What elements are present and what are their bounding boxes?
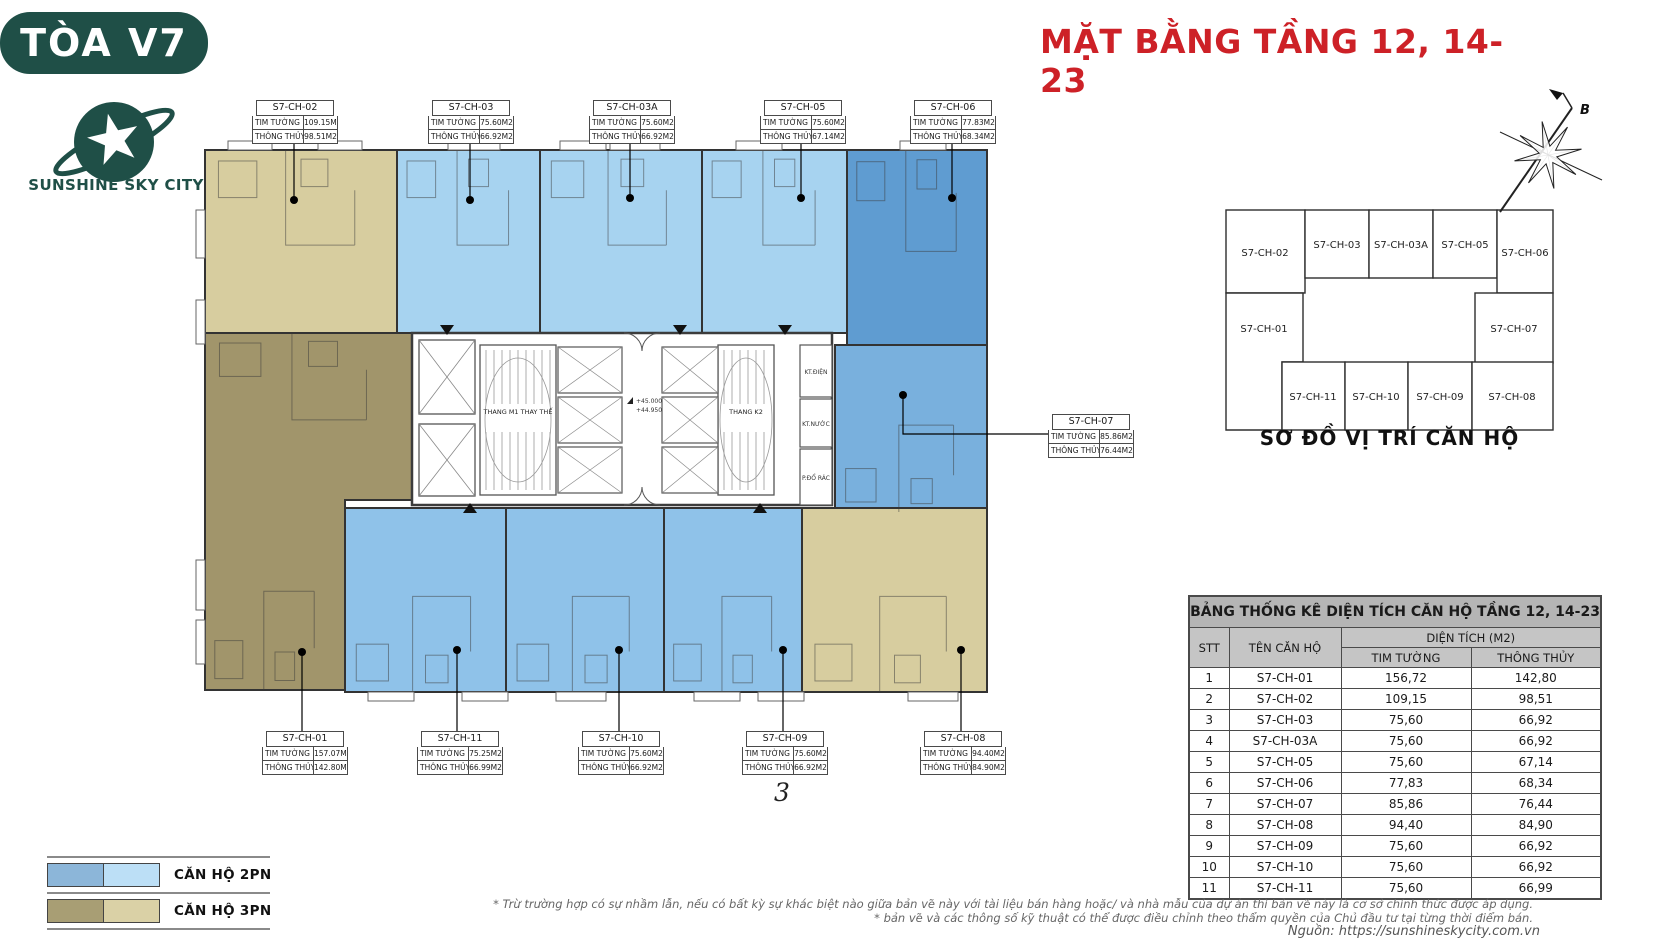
table-cell: S7-CH-02 bbox=[1229, 689, 1341, 710]
leader-dot-icon bbox=[615, 646, 623, 654]
legend-item-3pn: CĂN HỘ 3PN bbox=[47, 894, 307, 928]
table-row: 4S7-CH-03A75,6066,92 bbox=[1189, 731, 1601, 752]
table-cell: 2 bbox=[1189, 689, 1229, 710]
unit-label-s7-ch-09: S7-CH-09TIM TƯỜNG75.60M2THÔNG THỦY66.92M… bbox=[742, 731, 828, 775]
table-cell: 66,92 bbox=[1471, 731, 1601, 752]
unit-label-key: THÔNG THỦY bbox=[921, 761, 972, 774]
table-cell: S7-CH-03 bbox=[1229, 710, 1341, 731]
staircase-2 bbox=[718, 345, 774, 495]
table-row: 3S7-CH-0375,6066,92 bbox=[1189, 710, 1601, 731]
table-cell: 156,72 bbox=[1341, 668, 1471, 689]
table-row: 7S7-CH-0785,8676,44 bbox=[1189, 794, 1601, 815]
table-cell: S7-CH-08 bbox=[1229, 815, 1341, 836]
core-area: THANG M1 THAY THẾ THANG K2 +45.000 +44.9… bbox=[412, 325, 832, 513]
table-cell: 8 bbox=[1189, 815, 1229, 836]
balcony bbox=[758, 692, 804, 701]
table-cell: 66,92 bbox=[1471, 710, 1601, 731]
table-row: 9S7-CH-0975,6066,92 bbox=[1189, 836, 1601, 857]
floor-plan-page: THANG M1 THAY THẾ THANG K2 +45.000 +44.9… bbox=[0, 0, 1653, 945]
table-cell: S7-CH-07 bbox=[1229, 794, 1341, 815]
trash-room-label: P.ĐỔ RÁC bbox=[802, 474, 830, 482]
table-cell: 77,83 bbox=[1341, 773, 1471, 794]
table-cell: S7-CH-06 bbox=[1229, 773, 1341, 794]
swatch-color bbox=[104, 864, 159, 886]
unit-label-key: THÔNG THỦY bbox=[911, 130, 962, 143]
unit-label-name: S7-CH-09 bbox=[746, 731, 824, 747]
kt-nuoc-label: KT.NƯỚC bbox=[802, 421, 830, 428]
legend-label-2pn: CĂN HỘ 2PN bbox=[174, 867, 271, 883]
unit-label-value: 77.83M2 bbox=[962, 116, 995, 129]
unit-label-key: TIM TƯỜNG bbox=[911, 116, 962, 129]
unit-label-value: 85.86M2 bbox=[1100, 430, 1133, 443]
leader-dot-icon bbox=[298, 648, 306, 656]
unit-label-value: 75.60M2 bbox=[480, 116, 513, 129]
unit-label-row: THÔNG THỦY66.92M2 bbox=[742, 761, 828, 775]
table-cell: 142,80 bbox=[1471, 668, 1601, 689]
unit-label-key: TIM TƯỜNG bbox=[743, 747, 794, 760]
table-cell: S7-CH-11 bbox=[1229, 878, 1341, 900]
col-header-thong-thuy: THÔNG THỦY bbox=[1471, 648, 1601, 668]
key-plan-cell-label: S7-CH-11 bbox=[1289, 392, 1336, 403]
unit-label-row: THÔNG THỦY68.34M2 bbox=[910, 130, 996, 144]
unit-label-name: S7-CH-07 bbox=[1052, 414, 1130, 430]
footnote-line-2: * bản vẽ và các thông số kỹ thuật có thể… bbox=[400, 911, 1533, 925]
table-cell: 10 bbox=[1189, 857, 1229, 878]
swatch-color bbox=[48, 900, 104, 922]
balcony bbox=[368, 692, 414, 701]
unit-label-key: TIM TƯỜNG bbox=[429, 116, 480, 129]
unit-label-value: 157.07M2 bbox=[314, 747, 347, 760]
unit-label-name: S7-CH-02 bbox=[256, 100, 334, 116]
leader-dot-icon bbox=[779, 646, 787, 654]
table-cell: 75,60 bbox=[1341, 731, 1471, 752]
balcony bbox=[556, 692, 606, 701]
unit-label-row: TIM TƯỜNG94.40M2 bbox=[920, 747, 1006, 761]
unit-label-value: 75.60M2 bbox=[812, 116, 845, 129]
key-plan-cell-label: S7-CH-03 bbox=[1313, 240, 1360, 251]
unit-label-name: S7-CH-08 bbox=[924, 731, 1002, 747]
unit-label-key: TIM TƯỜNG bbox=[761, 116, 812, 129]
unit-label-row: TIM TƯỜNG77.83M2 bbox=[910, 116, 996, 130]
table-cell: 6 bbox=[1189, 773, 1229, 794]
unit-label-s7-ch-03a: S7-CH-03ATIM TƯỜNG75.60M2THÔNG THỦY66.92… bbox=[589, 100, 675, 144]
unit-label-key: THÔNG THỦY bbox=[253, 130, 304, 143]
legend-divider bbox=[47, 928, 270, 930]
key-plan-cell-label: S7-CH-09 bbox=[1416, 392, 1463, 403]
unit-label-s7-ch-10: S7-CH-10TIM TƯỜNG75.60M2THÔNG THỦY66.92M… bbox=[578, 731, 664, 775]
unit-label-s7-ch-06: S7-CH-06TIM TƯỜNG77.83M2THÔNG THỦY68.34M… bbox=[910, 100, 996, 144]
key-plan-cell-label: S7-CH-01 bbox=[1240, 324, 1287, 335]
compass-star-icon bbox=[1515, 122, 1582, 189]
unit-label-name: S7-CH-03 bbox=[432, 100, 510, 116]
unit-label-row: THÔNG THỦY66.92M2 bbox=[428, 130, 514, 144]
unit-label-key: TIM TƯỜNG bbox=[1049, 430, 1100, 443]
balcony bbox=[462, 692, 508, 701]
table-cell: S7-CH-10 bbox=[1229, 857, 1341, 878]
unit-label-key: THÔNG THỦY bbox=[263, 761, 314, 774]
building-tag-label: TÒA V7 bbox=[20, 21, 188, 65]
unit-label-key: THÔNG THỦY bbox=[418, 761, 469, 774]
balcony bbox=[196, 300, 205, 344]
unit-label-row: TIM TƯỜNG75.60M2 bbox=[760, 116, 846, 130]
leader-dot-icon bbox=[453, 646, 461, 654]
north-flag-icon bbox=[1549, 89, 1563, 100]
table-cell: 75,60 bbox=[1341, 878, 1471, 900]
table-cell: 66,92 bbox=[1471, 836, 1601, 857]
page-mark: 3 bbox=[774, 778, 790, 807]
unit-label-row: TIM TƯỜNG157.07M2 bbox=[262, 747, 348, 761]
unit-label-row: THÔNG THỦY142.80M2 bbox=[262, 761, 348, 775]
unit-label-name: S7-CH-03A bbox=[593, 100, 671, 116]
table-cell: 75,60 bbox=[1341, 752, 1471, 773]
key-plan-cell-label: S7-CH-05 bbox=[1441, 240, 1488, 251]
unit-label-row: TIM TƯỜNG75.60M2 bbox=[578, 747, 664, 761]
brand-logo bbox=[50, 101, 178, 183]
footnote-line-1: * Trừ trường hợp có sự nhầm lẫn, nếu có … bbox=[400, 897, 1533, 911]
unit-label-value: 68.34M2 bbox=[962, 130, 995, 143]
table-cell: S7-CH-03A bbox=[1229, 731, 1341, 752]
table-cell: 3 bbox=[1189, 710, 1229, 731]
stair2-label: THANG K2 bbox=[728, 408, 763, 416]
table-cell: 76,44 bbox=[1471, 794, 1601, 815]
unit-label-key: THÔNG THỦY bbox=[579, 761, 630, 774]
unit-label-value: 75.60M2 bbox=[794, 747, 827, 760]
table-cell: 94,40 bbox=[1341, 815, 1471, 836]
kt-dien-label: KT.ĐIỆN bbox=[804, 368, 827, 376]
leader-dot-icon bbox=[957, 646, 965, 654]
key-plan-diagram: S7-CH-02S7-CH-03S7-CH-03AS7-CH-05S7-CH-0… bbox=[1226, 210, 1553, 430]
key-plan-cell-label: S7-CH-08 bbox=[1488, 392, 1535, 403]
unit-label-s7-ch-05: S7-CH-05TIM TƯỜNG75.60M2THÔNG THỦY67.14M… bbox=[760, 100, 846, 144]
unit-label-key: THÔNG THỦY bbox=[743, 761, 794, 774]
legend-swatch-2pn bbox=[47, 863, 160, 887]
unit-label-row: THÔNG THỦY84.90M2 bbox=[920, 761, 1006, 775]
balcony bbox=[196, 620, 205, 664]
compass-icon: B bbox=[1500, 89, 1602, 212]
area-table-title: BẢNG THỐNG KÊ DIỆN TÍCH CĂN HỘ TẦNG 12, … bbox=[1189, 596, 1601, 628]
balcony bbox=[196, 560, 205, 610]
legend-swatch-3pn bbox=[47, 899, 160, 923]
leader-dot-icon bbox=[797, 194, 805, 202]
table-cell: 67,14 bbox=[1471, 752, 1601, 773]
unit-label-name: S7-CH-10 bbox=[582, 731, 660, 747]
unit-label-value: 67.14M2 bbox=[812, 130, 845, 143]
table-cell: 66,92 bbox=[1471, 857, 1601, 878]
unit-label-key: THÔNG THỦY bbox=[429, 130, 480, 143]
leader-dot-icon bbox=[899, 391, 907, 399]
unit-label-value: 98.51M2 bbox=[304, 130, 337, 143]
unit-label-key: TIM TƯỜNG bbox=[579, 747, 630, 760]
col-header-stt: STT bbox=[1189, 628, 1229, 668]
table-row: 8S7-CH-0894,4084,90 bbox=[1189, 815, 1601, 836]
unit-label-name: S7-CH-06 bbox=[914, 100, 992, 116]
table-cell: 1 bbox=[1189, 668, 1229, 689]
key-plan-title: SƠ ĐỒ VỊ TRÍ CĂN HỘ bbox=[1226, 426, 1553, 450]
unit-label-name: S7-CH-01 bbox=[266, 731, 344, 747]
brand-name: SUNSHINE SKY CITY bbox=[28, 176, 204, 194]
unit-label-row: THÔNG THỦY66.92M2 bbox=[578, 761, 664, 775]
unit-label-value: 76.44M2 bbox=[1100, 444, 1133, 457]
unit-label-key: THÔNG THỦY bbox=[590, 130, 641, 143]
balcony bbox=[196, 210, 205, 258]
key-plan-cell-label: S7-CH-03A bbox=[1374, 240, 1428, 251]
unit-label-s7-ch-11: S7-CH-11TIM TƯỜNG75.25M2THÔNG THỦY66.99M… bbox=[417, 731, 503, 775]
table-cell: 75,60 bbox=[1341, 857, 1471, 878]
unit-label-row: THÔNG THỦY66.99M2 bbox=[417, 761, 503, 775]
key-plan-cell-label: S7-CH-07 bbox=[1490, 324, 1537, 335]
swatch-color bbox=[104, 900, 159, 922]
unit-label-row: THÔNG THỦY98.51M2 bbox=[252, 130, 338, 144]
table-cell: 66,99 bbox=[1471, 878, 1601, 900]
table-cell: 85,86 bbox=[1341, 794, 1471, 815]
legend-item-2pn: CĂN HỘ 2PN bbox=[47, 858, 307, 892]
unit-label-value: 75.60M2 bbox=[630, 747, 663, 760]
unit-label-key: TIM TƯỜNG bbox=[263, 747, 314, 760]
north-label: B bbox=[1580, 103, 1590, 118]
elevation-value: +45.000 bbox=[636, 398, 662, 405]
unit-label-value: 94.40M2 bbox=[972, 747, 1005, 760]
table-cell: 84,90 bbox=[1471, 815, 1601, 836]
leader-dot-icon bbox=[466, 196, 474, 204]
table-cell: 4 bbox=[1189, 731, 1229, 752]
table-row: 10S7-CH-1075,6066,92 bbox=[1189, 857, 1601, 878]
unit-label-row: TIM TƯỜNG75.60M2 bbox=[428, 116, 514, 130]
unit-label-value: 75.60M2 bbox=[641, 116, 674, 129]
unit-label-value: 75.25M2 bbox=[469, 747, 502, 760]
leader-dot-icon bbox=[290, 196, 298, 204]
unit-label-value: 84.90M2 bbox=[972, 761, 1005, 774]
table-cell: 11 bbox=[1189, 878, 1229, 900]
legend: CĂN HỘ 2PN CĂN HỘ 3PN bbox=[47, 856, 307, 930]
col-header-area: DIỆN TÍCH (M2) bbox=[1341, 628, 1601, 648]
unit-label-name: S7-CH-11 bbox=[421, 731, 499, 747]
table-row: 6S7-CH-0677,8368,34 bbox=[1189, 773, 1601, 794]
unit-label-row: TIM TƯỜNG75.25M2 bbox=[417, 747, 503, 761]
unit-label-key: TIM TƯỜNG bbox=[590, 116, 641, 129]
unit-label-key: TIM TƯỜNG bbox=[418, 747, 469, 760]
unit-label-value: 66.92M2 bbox=[630, 761, 663, 774]
table-cell: 109,15 bbox=[1341, 689, 1471, 710]
table-row: 11S7-CH-1175,6066,99 bbox=[1189, 878, 1601, 900]
table-cell: S7-CH-05 bbox=[1229, 752, 1341, 773]
leader-dot-icon bbox=[948, 194, 956, 202]
table-cell: 75,60 bbox=[1341, 836, 1471, 857]
unit-label-row: THÔNG THỦY76.44M2 bbox=[1048, 444, 1134, 458]
table-cell: 75,60 bbox=[1341, 710, 1471, 731]
key-plan-cell-label: S7-CH-02 bbox=[1241, 248, 1288, 259]
table-row: 2S7-CH-02109,1598,51 bbox=[1189, 689, 1601, 710]
balcony bbox=[908, 692, 958, 701]
unit-label-s7-ch-02: S7-CH-02TIM TƯỜNG109.15M2THÔNG THỦY98.51… bbox=[252, 100, 338, 144]
unit-label-value: 66.99M2 bbox=[469, 761, 502, 774]
unit-label-s7-ch-07: S7-CH-07TIM TƯỜNG85.86M2THÔNG THỦY76.44M… bbox=[1048, 414, 1134, 458]
table-row: 5S7-CH-0575,6067,14 bbox=[1189, 752, 1601, 773]
table-cell: 9 bbox=[1189, 836, 1229, 857]
legend-label-3pn: CĂN HỘ 3PN bbox=[174, 903, 271, 919]
unit-label-value: 109.15M2 bbox=[304, 116, 337, 129]
table-cell: S7-CH-01 bbox=[1229, 668, 1341, 689]
unit-label-row: THÔNG THỦY67.14M2 bbox=[760, 130, 846, 144]
elevation-value: +44.950 bbox=[636, 407, 662, 414]
stair1-label: THANG M1 THAY THẾ bbox=[483, 406, 554, 416]
key-plan-cell-label: S7-CH-06 bbox=[1501, 248, 1548, 259]
col-header-tim-tuong: TIM TƯỜNG bbox=[1341, 648, 1471, 668]
unit-label-s7-ch-01: S7-CH-01TIM TƯỜNG157.07M2THÔNG THỦY142.8… bbox=[262, 731, 348, 775]
building-tag: TÒA V7 bbox=[0, 12, 208, 74]
unit-label-row: TIM TƯỜNG109.15M2 bbox=[252, 116, 338, 130]
unit-label-value: 66.92M2 bbox=[794, 761, 827, 774]
unit-label-value: 142.80M2 bbox=[314, 761, 347, 774]
swatch-color bbox=[48, 864, 104, 886]
key-plan-cell-label: S7-CH-10 bbox=[1352, 392, 1399, 403]
table-row: 1S7-CH-01156,72142,80 bbox=[1189, 668, 1601, 689]
unit-label-s7-ch-08: S7-CH-08TIM TƯỜNG94.40M2THÔNG THỦY84.90M… bbox=[920, 731, 1006, 775]
unit-label-key: TIM TƯỜNG bbox=[253, 116, 304, 129]
unit-label-key: THÔNG THỦY bbox=[761, 130, 812, 143]
unit-label-key: TIM TƯỜNG bbox=[921, 747, 972, 760]
unit-label-key: THÔNG THỦY bbox=[1049, 444, 1100, 457]
table-cell: 5 bbox=[1189, 752, 1229, 773]
unit-label-row: TIM TƯỜNG75.60M2 bbox=[742, 747, 828, 761]
balcony bbox=[694, 692, 740, 701]
col-header-name: TÊN CĂN HỘ bbox=[1229, 628, 1341, 668]
table-cell: 68,34 bbox=[1471, 773, 1601, 794]
unit-label-row: TIM TƯỜNG85.86M2 bbox=[1048, 430, 1134, 444]
unit-label-row: THÔNG THỦY66.92M2 bbox=[589, 130, 675, 144]
unit-label-s7-ch-03: S7-CH-03TIM TƯỜNG75.60M2THÔNG THỦY66.92M… bbox=[428, 100, 514, 144]
table-cell: 98,51 bbox=[1471, 689, 1601, 710]
table-cell: S7-CH-09 bbox=[1229, 836, 1341, 857]
unit-label-value: 66.92M2 bbox=[641, 130, 674, 143]
page-title: MẶT BẰNG TẦNG 12, 14-23 bbox=[1040, 22, 1540, 100]
unit-label-name: S7-CH-05 bbox=[764, 100, 842, 116]
source-credit: Nguồn: https://sunshineskycity.com.vn bbox=[1000, 924, 1540, 939]
area-table: BẢNG THỐNG KÊ DIỆN TÍCH CĂN HỘ TẦNG 12, … bbox=[1188, 595, 1602, 900]
table-cell: 7 bbox=[1189, 794, 1229, 815]
unit-label-row: TIM TƯỜNG75.60M2 bbox=[589, 116, 675, 130]
unit-label-value: 66.92M2 bbox=[480, 130, 513, 143]
leader-dot-icon bbox=[626, 194, 634, 202]
